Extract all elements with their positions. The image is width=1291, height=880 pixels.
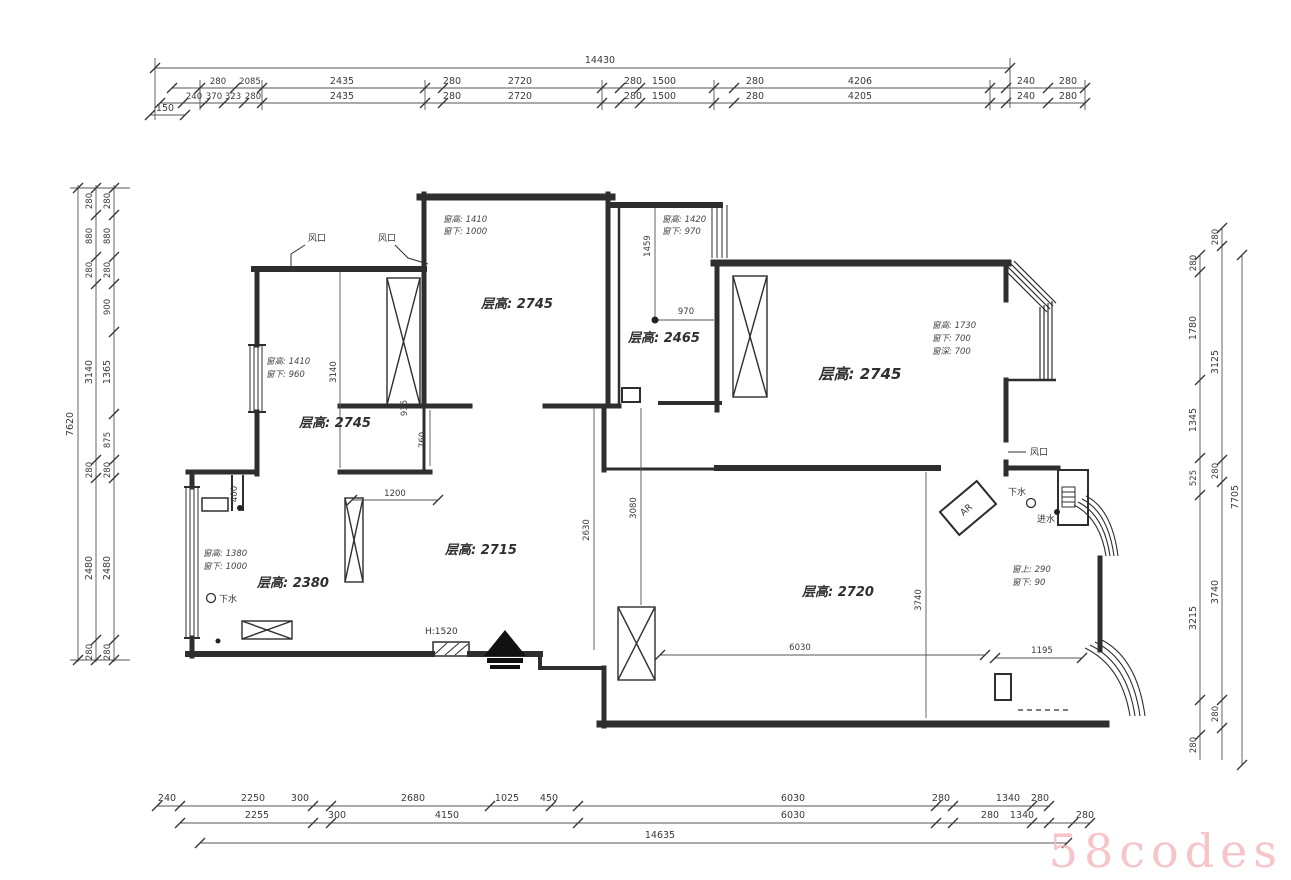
- watermark: 58codes: [1049, 824, 1283, 878]
- dim-label: 280: [210, 77, 226, 87]
- dim-label: 2435: [330, 91, 354, 102]
- ac-unit-label: AR: [959, 503, 975, 519]
- bottom-dimension-labels: 240 2250 300 2680 1025 450 6030 280 1340…: [158, 793, 1094, 841]
- dim-label: 2255: [245, 810, 269, 821]
- top-dimension-block: [145, 58, 1090, 120]
- window-note: 窗上: 290: [1012, 564, 1051, 575]
- dim-label: 370: [206, 92, 222, 102]
- entry-window-hatch: [433, 642, 469, 656]
- dim-label: 6030: [789, 643, 811, 653]
- dim-label: 280: [103, 262, 113, 278]
- vent-leader-1: [291, 245, 305, 268]
- room-label-top-mid: 层高: 2745: [480, 296, 553, 312]
- room-labels: 层高: 2745 层高: 2745 层高: 2465 层高: 2745 层高: …: [256, 296, 901, 600]
- dim-label: 280: [1211, 229, 1221, 245]
- dim-label: 760: [418, 432, 428, 448]
- bay-window-top-right: [1004, 261, 1056, 380]
- dim-label: 1340: [996, 793, 1020, 804]
- tick-marks: [152, 801, 1095, 848]
- right-dimension-labels: 280 3125 280 3740 280 280 1780 1345 525 …: [1188, 229, 1241, 753]
- dim-label: 150: [156, 103, 174, 114]
- dim-label: 2720: [508, 91, 532, 102]
- dim-label: 2680: [401, 793, 425, 804]
- dim-label: 450: [540, 793, 558, 804]
- dim-label: 1780: [1188, 316, 1199, 340]
- dim-label: 4150: [435, 810, 459, 821]
- dim-label: 2435: [330, 76, 354, 87]
- dim-label: 240: [1017, 91, 1035, 102]
- dim-label: 4206: [848, 76, 872, 87]
- dim-label: 880: [85, 228, 95, 244]
- room-label-upper-left: 层高: 2745: [298, 415, 371, 431]
- dim-label: 280: [746, 91, 764, 102]
- dim-label: 2720: [508, 76, 532, 87]
- dim-label: 2085: [239, 77, 261, 87]
- dim-label: 1365: [102, 360, 113, 384]
- dim-label: 6030: [781, 810, 805, 821]
- wall-stub-dot: [237, 505, 243, 511]
- dim-label: 2480: [102, 556, 113, 580]
- window-note: 窗高: 1410: [266, 356, 310, 367]
- dim-label: 3140: [329, 361, 339, 383]
- dim-label: 280: [624, 76, 642, 87]
- dim-label: 2250: [241, 793, 265, 804]
- dim-label: 280: [1211, 463, 1221, 479]
- vent-label-1: 风口: [308, 233, 326, 244]
- top-dimension-labels: 14430 280 2085 2435 280 2720 280 1500 28…: [156, 55, 1077, 114]
- dim-label: 280: [245, 92, 261, 102]
- radiator: [1058, 470, 1088, 525]
- drain-label-right: 下水: [1008, 486, 1026, 498]
- vent-label-2: 风口: [378, 233, 396, 244]
- dim-label: 880: [103, 228, 113, 244]
- dim-label: 280: [443, 91, 461, 102]
- dim-label: 4205: [848, 91, 872, 102]
- dim-label: 280: [981, 810, 999, 821]
- dim-label: 1345: [1188, 408, 1199, 432]
- dim-label: 323: [225, 92, 241, 102]
- room-label-center: 层高: 2715: [444, 542, 517, 558]
- dim-label: 280: [103, 193, 113, 209]
- dim-label: 280: [1076, 810, 1094, 821]
- dim-label: 3080: [629, 497, 639, 519]
- entry-arrow: [484, 630, 526, 656]
- dim-label: 1500: [652, 76, 676, 87]
- window-note: 窗下: 960: [266, 369, 305, 380]
- window-note: 窗下: 1000: [443, 226, 487, 237]
- dim-label: 240: [186, 92, 202, 102]
- dim-label: 1200: [384, 489, 406, 499]
- dim-label: 280: [103, 644, 113, 660]
- left-dimension-block: [70, 183, 130, 665]
- dim-label: 240: [1017, 76, 1035, 87]
- dim-label: 7620: [65, 412, 76, 436]
- dim-label: 1340: [1010, 810, 1034, 821]
- dim-label: 280: [1059, 91, 1077, 102]
- dim-label: 280: [1059, 76, 1077, 87]
- window-note: 窗高: 1420: [662, 214, 706, 225]
- dim-label: 900: [103, 299, 113, 315]
- dim-label: 525: [1189, 470, 1199, 486]
- dim-label: 3740: [914, 589, 924, 611]
- bottom-dimension-block: [152, 801, 1095, 848]
- dim-label: 935: [400, 400, 410, 416]
- left-dimension-labels: 7620 280 880 280 3140 280 2480 280 280 8…: [65, 193, 113, 660]
- dim-label: 280: [932, 793, 950, 804]
- floor-plan-drawing: 14430 280 2085 2435 280 2720 280 1500 28…: [0, 0, 1291, 880]
- dim-label: 1459: [643, 235, 653, 257]
- window-note: 窗下: 700: [932, 333, 971, 344]
- floor-dot: [216, 639, 221, 644]
- room-label-bottom-right: 层高: 2720: [801, 584, 874, 600]
- dim-label: 3740: [1210, 580, 1221, 604]
- dim-label: 6030: [781, 793, 805, 804]
- window-note: 窗下: 90: [1012, 577, 1045, 588]
- dim-label: 280: [1211, 706, 1221, 722]
- room-label-bottom-left: 层高: 2380: [256, 575, 329, 591]
- dim-label: 300: [328, 810, 346, 821]
- curved-window-right: [1018, 496, 1145, 716]
- floor-plan-page: 14430 280 2085 2435 280 2720 280 1500 28…: [0, 0, 1291, 880]
- vent-label-3: 风口: [1030, 447, 1048, 458]
- door-height-label: H:1520: [425, 627, 458, 637]
- dim-label: 7705: [1230, 485, 1241, 509]
- dim-label: 3125: [1210, 350, 1221, 374]
- dim-label: 280: [85, 262, 95, 278]
- dim-label: 14430: [585, 55, 615, 66]
- dim-label: 2480: [84, 556, 95, 580]
- window-note: 窗高: 1410: [443, 214, 487, 225]
- dim-label: 875: [103, 432, 113, 448]
- dim-label: 1025: [495, 793, 519, 804]
- window-note: 窗高: 1380: [203, 548, 247, 559]
- dim-label: 280: [1031, 793, 1049, 804]
- drain-symbol-left: [207, 594, 216, 603]
- window-note: 窗下: 970: [662, 226, 701, 237]
- drain-label-left: 下水: [219, 593, 237, 605]
- room-label-right-big: 层高: 2745: [818, 365, 902, 383]
- dim-dot: [652, 317, 659, 324]
- window-note: 窗高: 1730: [932, 320, 976, 331]
- dim-label: 280: [85, 193, 95, 209]
- drain-symbol-right: [1027, 499, 1036, 508]
- dim-label: 280: [1189, 255, 1199, 271]
- fixtures: [207, 245, 1089, 669]
- window-note: 窗深: 700: [932, 346, 971, 357]
- dim-label: 280: [746, 76, 764, 87]
- tick-marks: [145, 63, 1090, 120]
- dim-label: 1500: [652, 91, 676, 102]
- dim-label: 280: [85, 462, 95, 478]
- dim-label: 14635: [645, 830, 675, 841]
- walls: [188, 194, 1106, 726]
- dim-label: 240: [158, 793, 176, 804]
- dim-label: 970: [678, 307, 694, 317]
- window-note: 窗下: 1000: [203, 561, 247, 572]
- dim-label: 400: [230, 486, 240, 502]
- dim-label: 3215: [1188, 606, 1199, 630]
- dim-label: 280: [85, 644, 95, 660]
- dim-label: 3140: [84, 360, 95, 384]
- dim-label: 280: [1189, 737, 1199, 753]
- dim-label: 1195: [1031, 646, 1053, 656]
- dim-label: 2630: [582, 519, 592, 541]
- dim-label: 300: [291, 793, 309, 804]
- room-label-small-mid: 层高: 2465: [627, 330, 700, 346]
- dim-label: 280: [443, 76, 461, 87]
- inlet-label: 进水: [1037, 513, 1055, 525]
- dim-label: 280: [103, 462, 113, 478]
- dim-label: 280: [624, 91, 642, 102]
